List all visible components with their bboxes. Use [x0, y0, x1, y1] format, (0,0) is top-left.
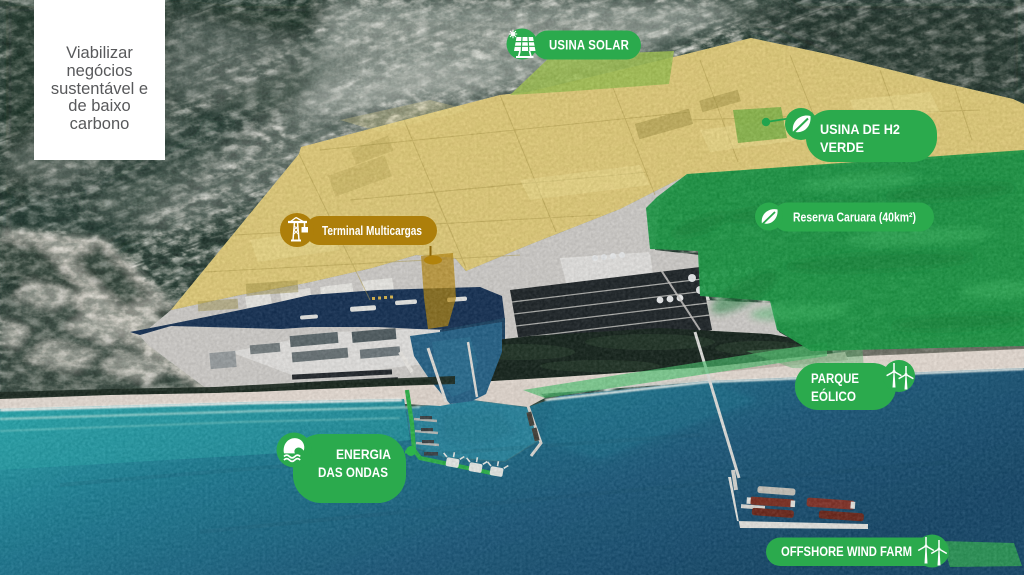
svg-text:DAS ONDAS: DAS ONDAS	[318, 465, 388, 480]
svg-text:ENERGIA: ENERGIA	[336, 447, 391, 462]
svg-text:OFFSHORE WIND FARM: OFFSHORE WIND FARM	[781, 544, 912, 559]
svg-text:Reserva Caruara (40km²): Reserva Caruara (40km²)	[793, 211, 916, 225]
svg-text:USINA SOLAR: USINA SOLAR	[549, 38, 629, 53]
svg-text:PARQUE: PARQUE	[811, 371, 859, 386]
svg-text:VERDE: VERDE	[820, 139, 864, 155]
svg-text:Terminal Multicargas: Terminal Multicargas	[322, 224, 422, 238]
svg-text:EÓLICO: EÓLICO	[811, 389, 856, 404]
svg-text:USINA DE H2: USINA DE H2	[820, 121, 900, 137]
